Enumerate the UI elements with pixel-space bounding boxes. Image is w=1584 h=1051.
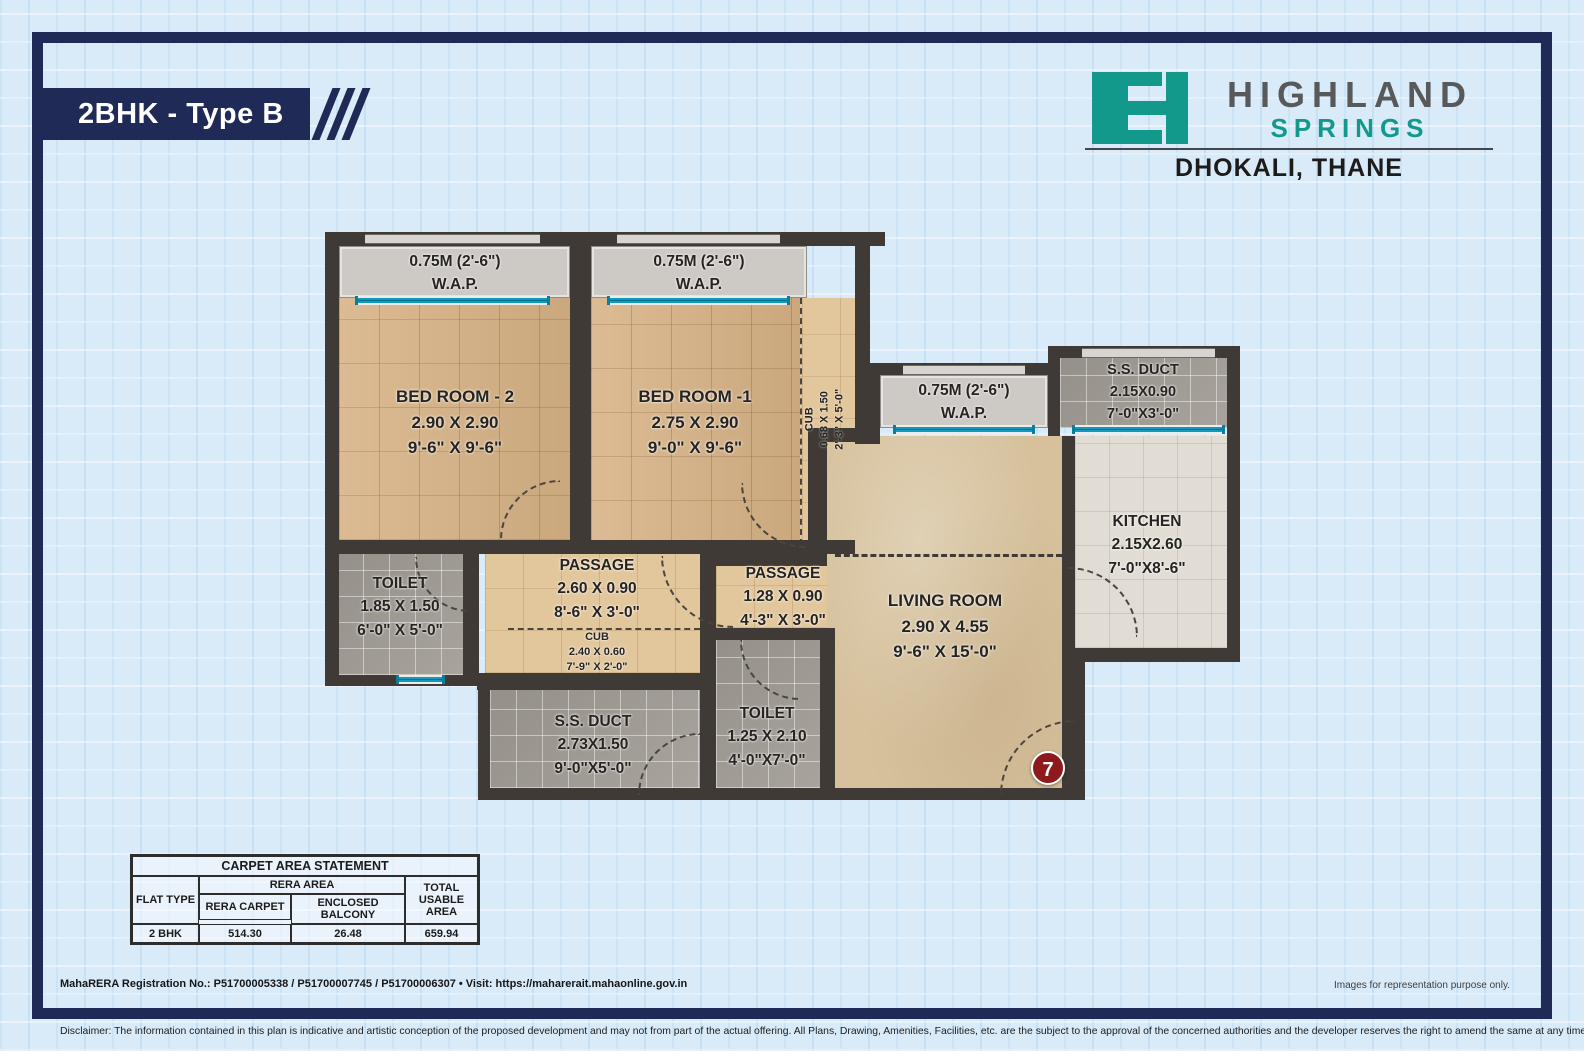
cell-rera-carpet: 514.30: [199, 924, 291, 943]
toilet2-label: TOILET1.25 X 2.104'-0"X7'-0": [727, 702, 806, 772]
window-sill: [903, 365, 1025, 375]
window: [893, 425, 1035, 434]
wall: [1227, 346, 1240, 662]
brand-subname: SPRINGS: [1200, 113, 1500, 144]
wall: [1062, 648, 1240, 662]
plan-type-banner: 2BHK - Type B: [32, 88, 310, 140]
toilet1-label: TOILET1.85 X 1.506'-0" X 5'-0": [357, 572, 443, 642]
bedroom2-label: BED ROOM - 22.90 X 2.909'-6" X 9'-6": [396, 384, 514, 461]
kitchen-label: KITCHEN2.15X2.607'-0"X8'-6": [1108, 510, 1185, 580]
images-note: Images for representation purpose only.: [1334, 980, 1510, 991]
window-sill: [617, 234, 780, 244]
cell-flat-type: 2 BHK: [132, 924, 199, 943]
wall: [478, 788, 1085, 800]
wall: [325, 232, 339, 686]
window-sill: [1082, 348, 1215, 358]
col-rera-carpet: RERA CARPET: [199, 894, 291, 920]
window: [396, 675, 445, 684]
wall: [820, 628, 835, 800]
table-title: CARPET AREA STATEMENT: [132, 856, 478, 876]
col-rera-area: RERA AREA: [199, 876, 405, 894]
wap-bedroom1-label: 0.75M (2'-6")W.A.P.: [653, 250, 744, 297]
brand-name: HIGHLAND: [1200, 74, 1500, 116]
passage2-label: PASSAGE1.28 X 0.904'-3" X 3'-0": [740, 562, 826, 632]
disclaimer-text: Disclaimer: The information contained in…: [60, 1026, 1530, 1037]
window: [607, 296, 790, 305]
carpet-area-table: CARPET AREA STATEMENT FLAT TYPE RERA ARE…: [130, 854, 480, 945]
wall: [570, 232, 591, 554]
highland-logo-icon: [1092, 72, 1188, 149]
window: [1072, 425, 1225, 434]
col-total-usable-area: TOTAL USABLE AREA: [405, 876, 478, 924]
brand-location: DHOKALI, THANE: [1085, 154, 1493, 183]
wall: [477, 673, 700, 690]
cell-enclosed-balcony: 26.48: [291, 924, 405, 943]
entrance-number-badge: 7: [1031, 751, 1065, 785]
bedroom1-label: BED ROOM -12.75 X 2.909'-0" X 9'-6": [638, 384, 751, 461]
wap-bedroom2-label: 0.75M (2'-6")W.A.P.: [409, 250, 500, 297]
col-flat-type: FLAT TYPE: [132, 876, 199, 924]
ssduct-top-label: S.S. DUCT2.15X0.907'-0"X3'-0": [1107, 360, 1179, 425]
brand-divider: [1085, 148, 1493, 150]
col-enclosed-balcony: ENCLOSED BALCONY: [291, 894, 405, 924]
cub2-label: CUB2.40 X 0.607'-9" X 2'-0": [567, 630, 628, 675]
wall: [478, 690, 490, 800]
window-sill: [365, 234, 540, 244]
living-dashed-line: [835, 554, 1062, 557]
cell-total-usable: 659.94: [405, 924, 478, 943]
window: [355, 296, 550, 305]
maharera-registration: MahaRERA Registration No.: P51700005338 …: [60, 978, 687, 990]
passage1-label: PASSAGE2.60 X 0.908'-6" X 3'-0": [554, 554, 640, 624]
banner-stripes-decor: [322, 88, 367, 140]
wap-living-label: 0.75M (2'-6")W.A.P.: [918, 379, 1009, 426]
wall: [1048, 346, 1060, 436]
living-room-label: LIVING ROOM2.90 X 4.559'-6" X 15'-0": [888, 588, 1002, 665]
ssduct-bottom-label: S.S. DUCT2.73X1.509'-0"X5'-0": [554, 710, 631, 780]
brochure-page: 2BHK - Type B HIGHLAND SPRINGS DHOKALI, …: [0, 0, 1584, 1051]
floor-plan: 7 0.75M (2'-6")W.A.P. 0.75M (2'-6")W.A.P…: [325, 232, 1245, 812]
cub1-label: CUB0.68 X 1.502'-3" X 5'-0": [803, 354, 848, 484]
